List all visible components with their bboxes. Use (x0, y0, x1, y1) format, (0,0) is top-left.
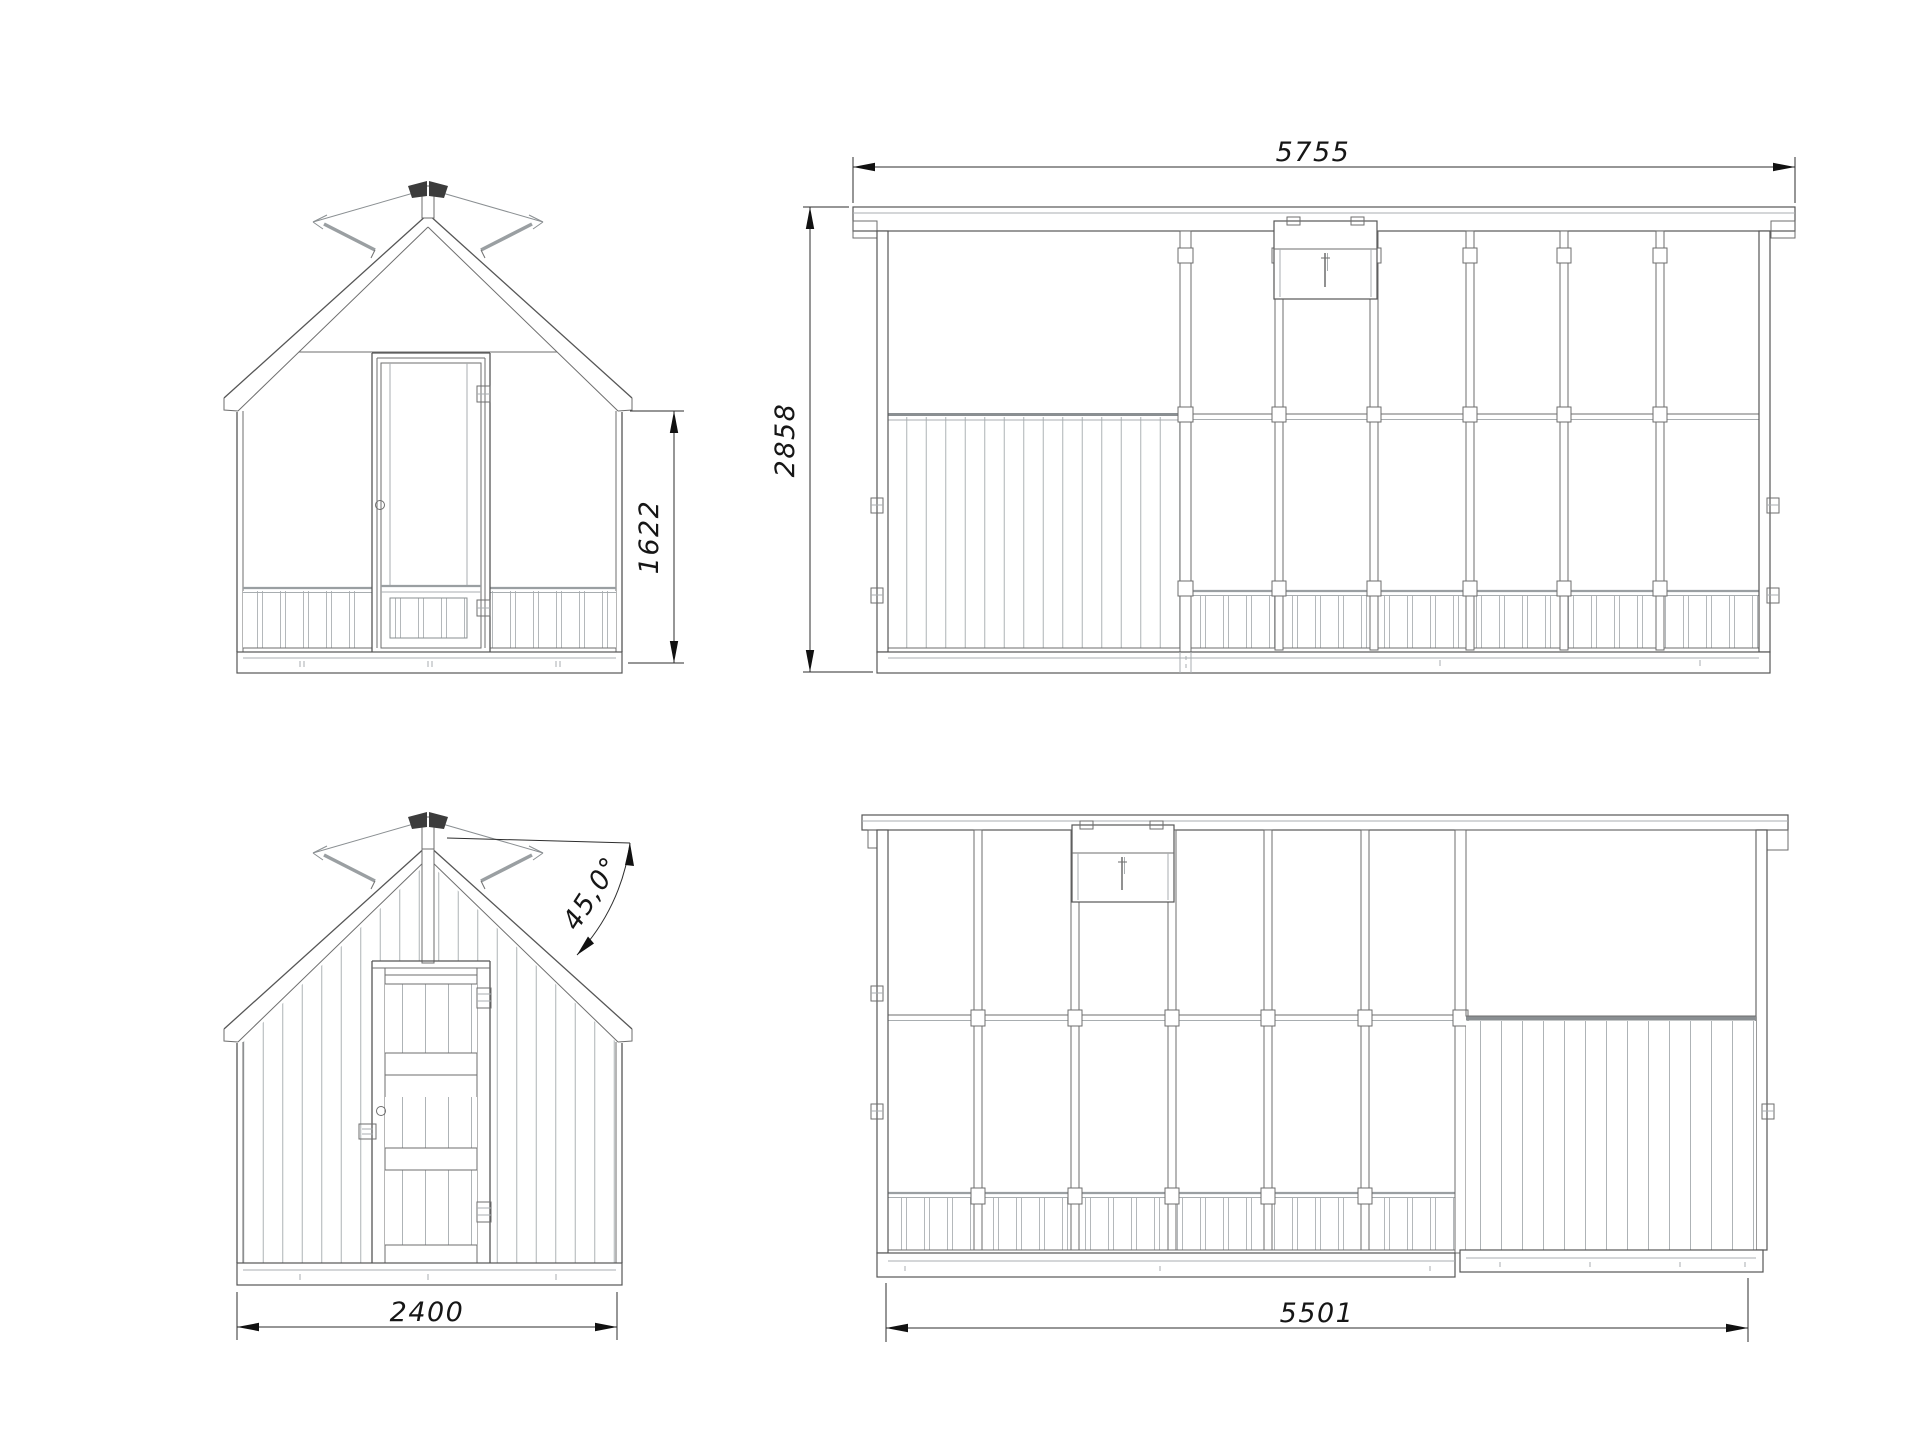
roof-finial (313, 181, 543, 258)
dimension-side-length: 5755 (853, 137, 1795, 203)
dimension-label-2858: 2858 (770, 403, 801, 478)
dimension-front-wall-height: 1622 (628, 411, 684, 663)
dimension-label-5755: 5755 (1276, 137, 1351, 168)
kickboard-left (243, 588, 372, 648)
gable-center-post (422, 849, 434, 963)
front-door (372, 353, 490, 652)
rear-elevation-view: 45,0° 2400 (224, 812, 634, 1340)
base-skid-front (237, 652, 622, 673)
dimension-base-length: 5501 (886, 1278, 1748, 1342)
dimension-label-5501: 5501 (1280, 1298, 1355, 1329)
drawing-sheet: 1622 (0, 0, 1920, 1440)
base-skid-rear (237, 1263, 622, 1285)
front-elevation-view: 1622 (224, 181, 684, 673)
dimension-label-2400: 2400 (390, 1297, 465, 1328)
planked-shed-section-2 (1466, 830, 1756, 1250)
base-skid-side (877, 652, 1770, 673)
technical-drawing-canvas: 1622 (0, 0, 1920, 1440)
dimension-front-width: 2400 (237, 1292, 617, 1340)
planked-shed-section (888, 415, 1180, 649)
opposite-side-elevation-view: 5501 (862, 815, 1788, 1342)
long-side-elevation-view: 5755 2858 (770, 137, 1795, 673)
roof-vent-window (1274, 217, 1377, 299)
base-skid-opposite (877, 1250, 1763, 1277)
roof-vent-window-2 (1072, 821, 1174, 902)
dimension-label-1622: 1622 (634, 500, 665, 575)
dimension-overall-height: 2858 (770, 207, 873, 672)
roof-edge-band-2 (862, 815, 1788, 850)
kickboard-right (490, 588, 616, 648)
